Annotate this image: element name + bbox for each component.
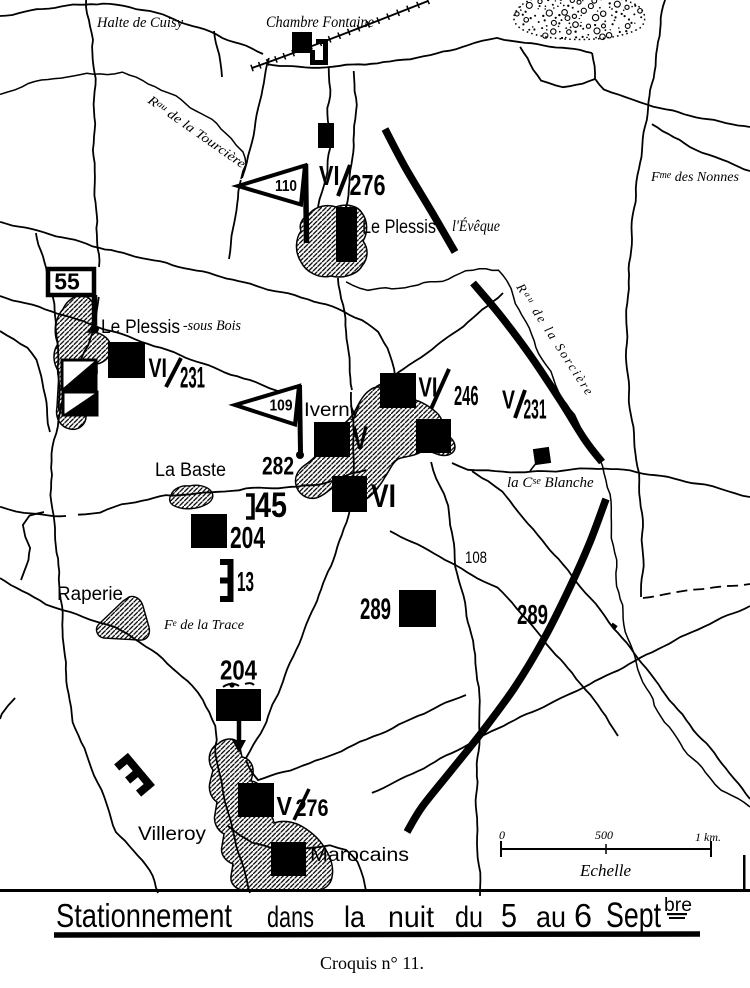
svg-text:bre: bre: [664, 895, 692, 916]
svg-text:Halte de Cuisy: Halte de Cuisy: [96, 15, 183, 31]
svg-text:246: 246: [454, 380, 479, 411]
svg-text:VI: VI: [319, 160, 340, 191]
svg-text:Marocains: Marocains: [310, 845, 409, 866]
svg-text:au: au: [536, 901, 566, 934]
svg-text:Chambre Fontaine: Chambre Fontaine: [266, 14, 374, 31]
svg-text:V: V: [277, 791, 293, 821]
svg-text:Villeroy: Villeroy: [138, 824, 207, 845]
svg-text:289: 289: [517, 599, 548, 630]
svg-text:l'Évêque: l'Évêque: [452, 216, 500, 235]
svg-text:la Cse Blanche: la Cse Blanche: [507, 475, 594, 491]
svg-text:V: V: [352, 420, 368, 456]
svg-text:109: 109: [270, 398, 293, 415]
svg-text:108: 108: [465, 548, 487, 567]
svg-text:276: 276: [296, 795, 329, 822]
svg-text:du: du: [455, 901, 483, 934]
svg-text:Stationnement: Stationnement: [56, 897, 232, 934]
svg-text:6: 6: [574, 897, 592, 934]
svg-text:V: V: [502, 385, 515, 415]
svg-text:Iverny: Iverny: [304, 400, 361, 421]
svg-text:0: 0: [499, 828, 505, 842]
svg-text:Le Plessis: Le Plessis: [101, 317, 180, 338]
svg-text:-sous Bois: -sous Bois: [183, 318, 241, 334]
svg-text:204: 204: [220, 655, 257, 686]
svg-text:dans: dans: [267, 901, 314, 934]
svg-text:276: 276: [350, 170, 386, 202]
svg-text:Croquis n° 11.: Croquis n° 11.: [320, 953, 424, 973]
svg-text:1 km.: 1 km.: [695, 830, 721, 844]
svg-text:Echelle: Echelle: [579, 861, 631, 880]
svg-text:la: la: [344, 901, 365, 934]
svg-text:282: 282: [262, 453, 294, 481]
svg-text:Sept: Sept: [606, 896, 661, 935]
svg-text:La Baste: La Baste: [155, 460, 226, 481]
svg-text:500: 500: [595, 828, 613, 842]
svg-text:55: 55: [54, 269, 80, 295]
svg-text:204: 204: [230, 520, 266, 555]
svg-text:110: 110: [275, 178, 297, 195]
svg-text:Raperie: Raperie: [57, 584, 123, 605]
svg-text:VI: VI: [371, 478, 396, 514]
svg-text:231: 231: [180, 362, 205, 395]
svg-text:231: 231: [524, 394, 547, 425]
svg-text:VI: VI: [149, 353, 168, 383]
svg-text:13: 13: [237, 566, 254, 597]
svg-text:289: 289: [360, 593, 391, 626]
svg-text:5: 5: [501, 897, 517, 934]
svg-text:nuit: nuit: [388, 901, 435, 934]
svg-text:Le Plessis: Le Plessis: [362, 217, 436, 238]
